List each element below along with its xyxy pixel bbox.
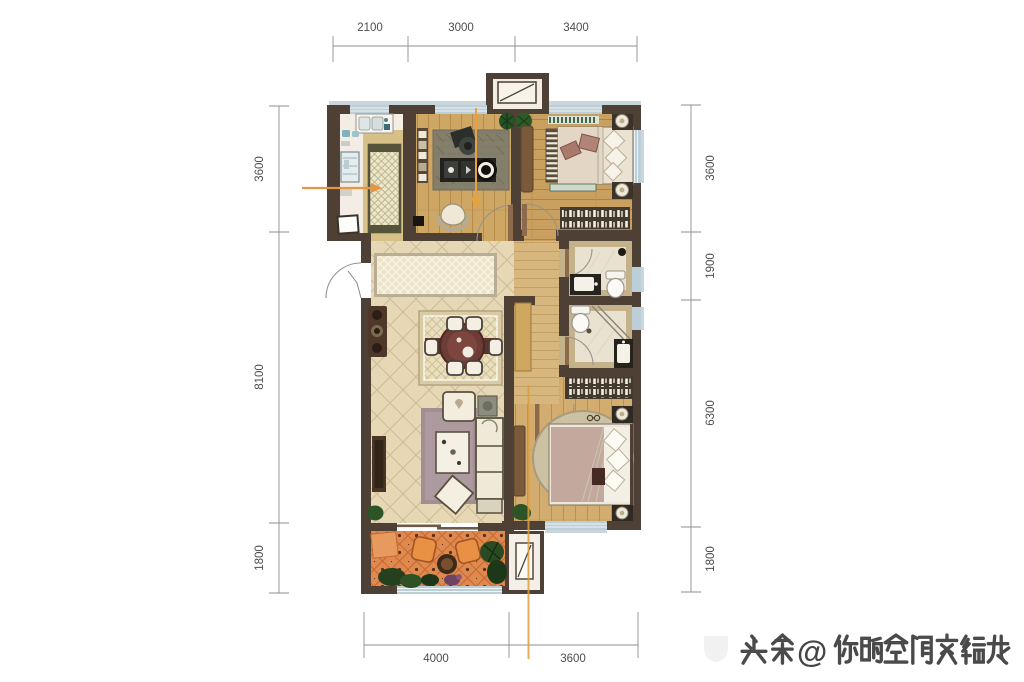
svg-text:2100: 2100 <box>357 22 383 34</box>
svg-text:@: @ <box>797 634 827 669</box>
svg-text:3400: 3400 <box>563 22 589 34</box>
svg-text:3600: 3600 <box>705 155 717 181</box>
svg-text:3600: 3600 <box>254 156 266 182</box>
svg-text:6300: 6300 <box>705 400 717 426</box>
svg-text:8100: 8100 <box>254 364 266 390</box>
svg-text:1800: 1800 <box>705 546 717 572</box>
svg-text:1800: 1800 <box>254 545 266 571</box>
svg-text:3000: 3000 <box>448 22 474 34</box>
svg-text:4000: 4000 <box>423 653 449 665</box>
svg-text:1900: 1900 <box>705 253 717 279</box>
svg-text:3600: 3600 <box>560 653 586 665</box>
